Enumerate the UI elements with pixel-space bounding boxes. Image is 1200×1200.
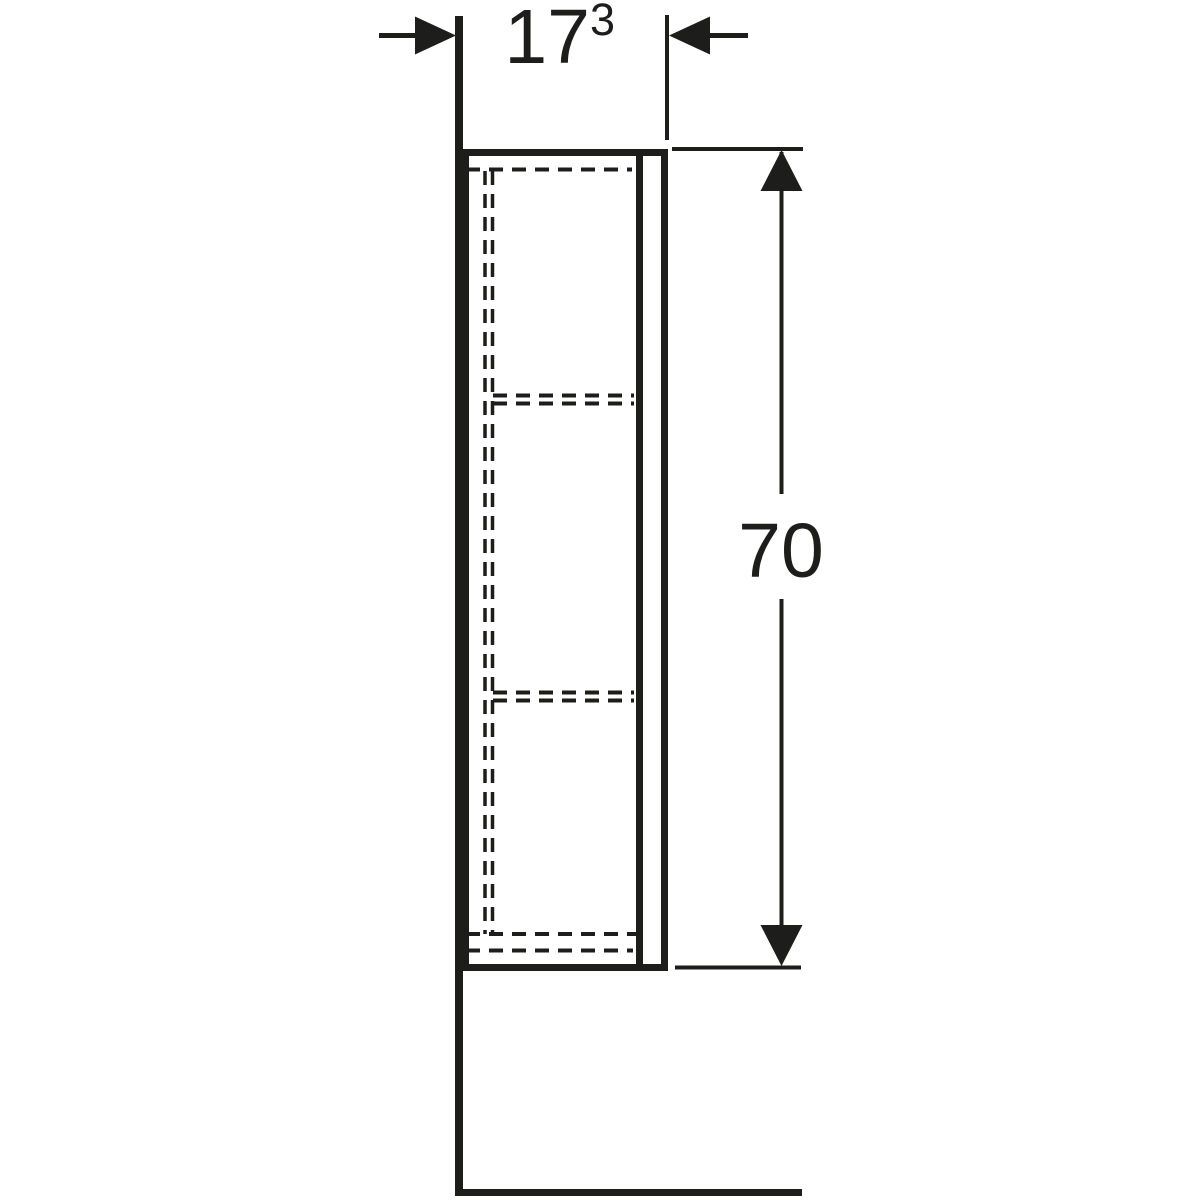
depth-dim-label: 17 [504,0,590,80]
depth-dim-arrow-right-icon [415,17,456,55]
technical-drawing-page: 17 3 70 [0,0,1200,1200]
height-dim-label: 70 [738,508,824,594]
height-dim-arrow-down-icon [761,925,803,966]
drawing-fills: 17 3 70 [415,0,824,966]
height-dim-arrow-up-icon [761,150,803,191]
drawing-strokes [379,15,803,1193]
depth-dim-arrow-left-icon [669,17,710,55]
cabinet-body-outline [466,153,665,968]
cabinet-side-elevation-drawing: 17 3 70 [0,0,1200,1200]
depth-dim-superscript: 3 [590,0,615,45]
